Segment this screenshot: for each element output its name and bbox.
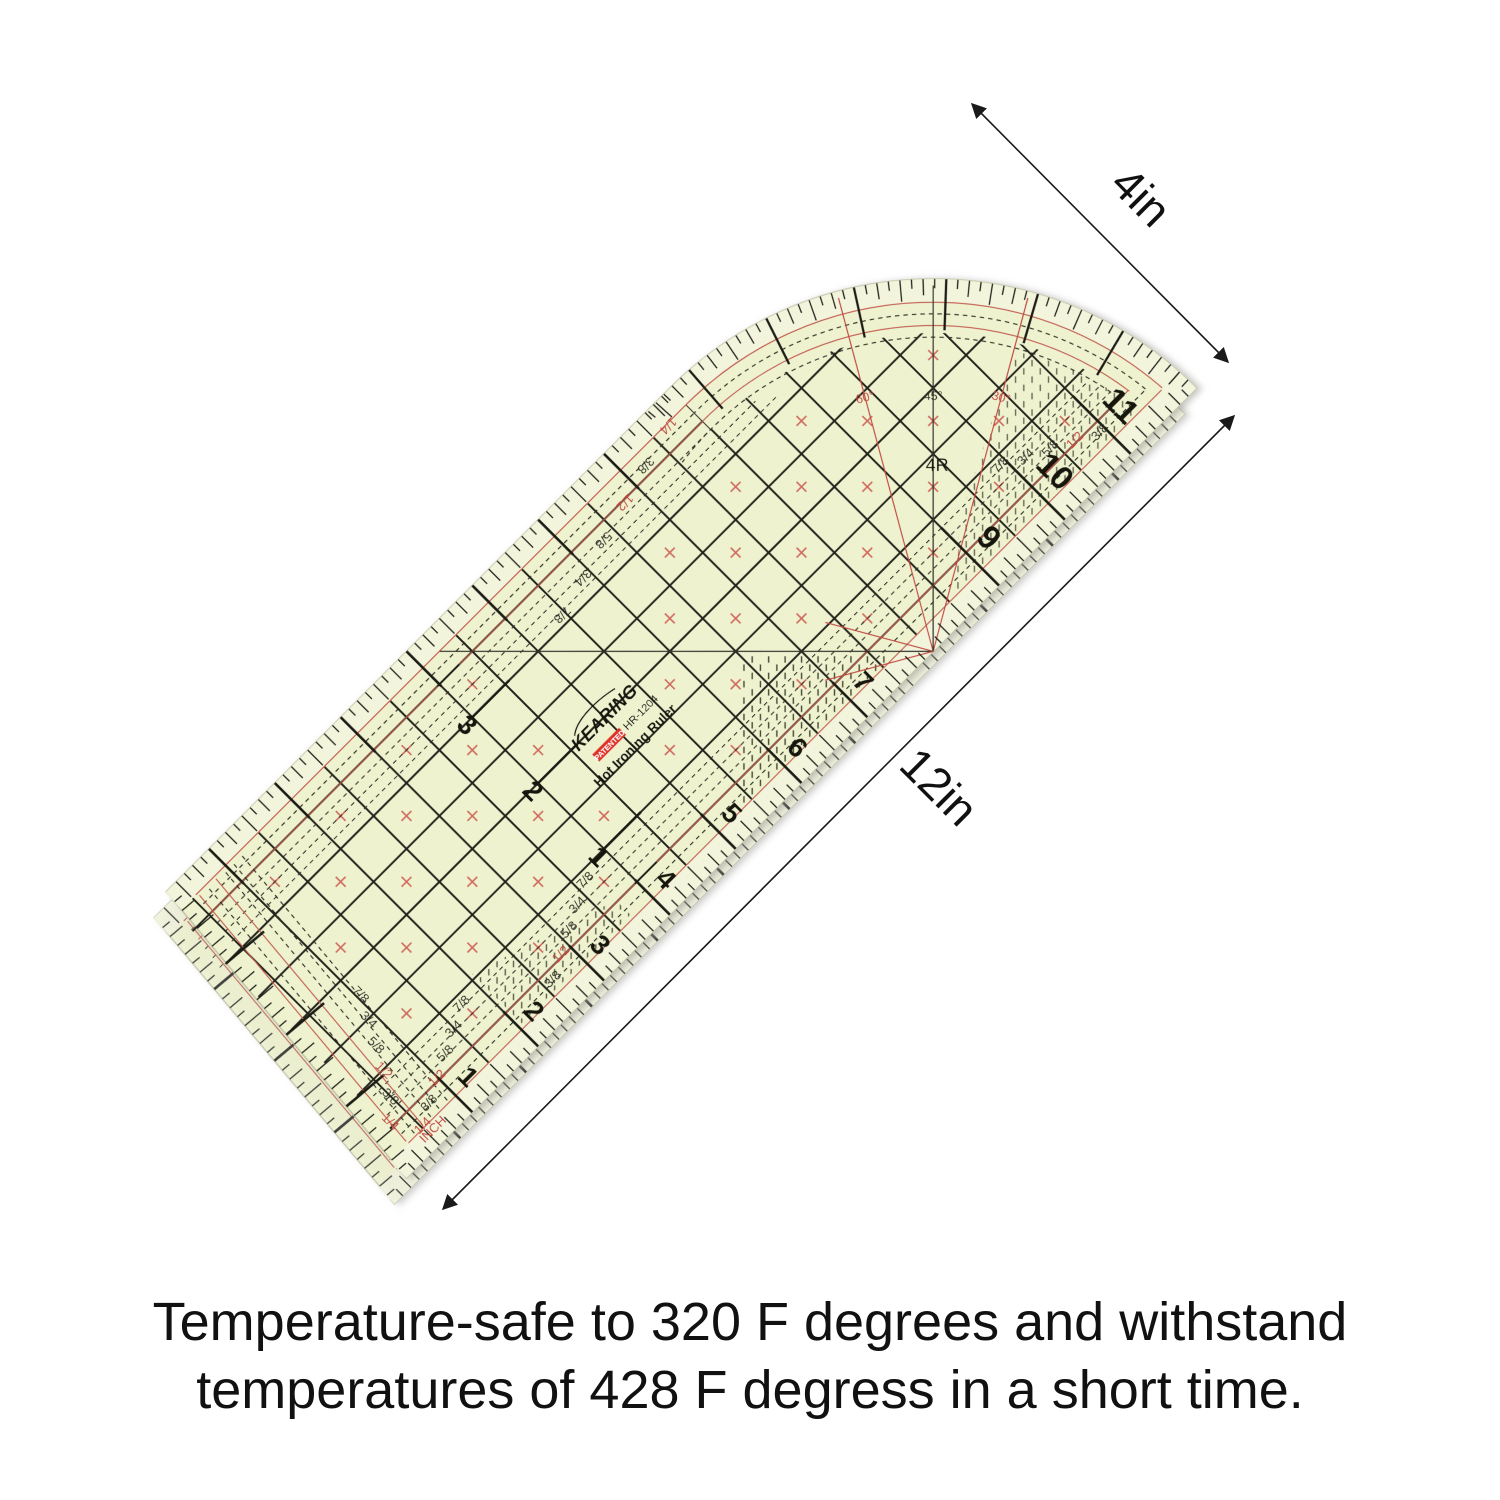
svg-text:4in: 4in xyxy=(1101,157,1181,237)
svg-text:12in: 12in xyxy=(890,738,988,836)
